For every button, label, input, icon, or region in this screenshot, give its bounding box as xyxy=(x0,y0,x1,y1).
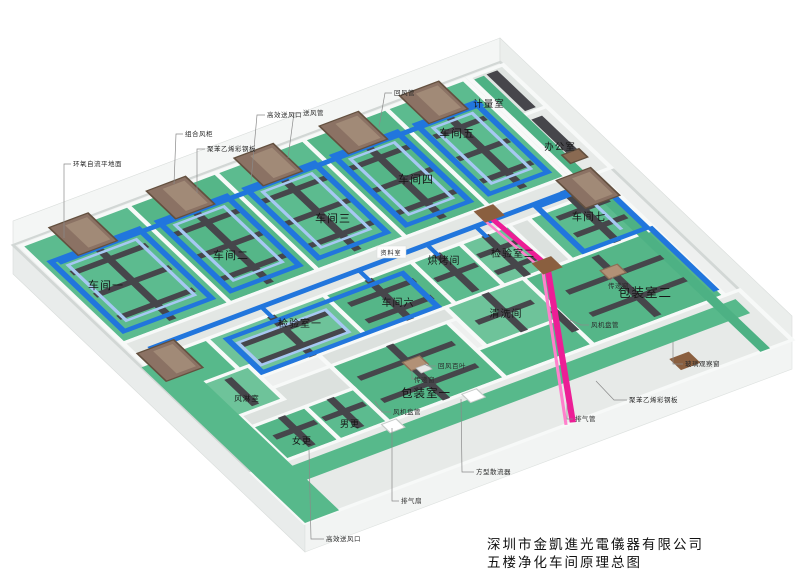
room-label-packing1: 包装室一 xyxy=(401,386,451,400)
callout-transfer-window-1: 传递窗 xyxy=(608,281,629,290)
room-label-metering: 计量室 xyxy=(473,98,505,110)
room-label-inspection1: 检验室一 xyxy=(278,317,322,330)
cleanroom-isometric-diagram: 车间一 车间二 车间三 车间四 车间五 车间七 计量室 办公室 检验室二 烘烤间… xyxy=(0,0,800,587)
title-block: 深圳市金凱進光電儀器有限公司 五楼净化车间原理总图 xyxy=(487,536,704,571)
room-label-workshop6: 车间六 xyxy=(382,296,415,309)
callout-return-duct: 回风管 xyxy=(394,88,415,97)
room-label-workshop7: 车间七 xyxy=(572,210,607,223)
callout-exhaust-duct: 排气管 xyxy=(575,414,596,423)
callout-glass-window: 玻璃观察窗 xyxy=(685,359,720,368)
callout-hepa-outlet-top: 高效送风口 xyxy=(267,110,302,119)
callout-exhaust-fan: 排气扇 xyxy=(401,496,422,505)
room-label-workshop3: 车间三 xyxy=(315,211,351,225)
room-label-workshop5: 车间五 xyxy=(439,126,475,140)
callout-panel-right: 聚苯乙烯彩钢板 xyxy=(629,395,678,404)
room-label-air-shower: 风淋室 xyxy=(234,393,260,403)
room-label-workshop2: 车间二 xyxy=(213,248,249,262)
room-label-female-changing: 女更 xyxy=(292,435,312,447)
callout-return-louver: 回风百叶 xyxy=(438,361,466,370)
callout-fan-coil-2: 风机盘管 xyxy=(393,407,421,416)
callout-square-diffuser: 方型散流器 xyxy=(476,467,511,476)
callout-panel-left: 聚苯乙烯彩钢板 xyxy=(207,144,256,153)
room-label-male-changing: 男更 xyxy=(340,419,360,430)
drawing-title: 五楼净化车间原理总图 xyxy=(487,554,642,571)
iso-floor-plane xyxy=(10,59,792,523)
callout-epoxy-floor: 环氧自流平地面 xyxy=(73,159,122,168)
room-label-workshop4: 车间四 xyxy=(398,172,434,186)
room-label-baking: 烘烤间 xyxy=(428,254,461,267)
callout-supply-duct: 送风管 xyxy=(303,108,324,117)
callout-fan-coil-1: 风机盘管 xyxy=(591,320,619,329)
room-label-office: 办公室 xyxy=(544,141,576,153)
callout-combined-ahu: 组合风柜 xyxy=(185,129,213,138)
room-label-inspection2: 检验室二 xyxy=(491,247,535,260)
callout-hepa-outlet-bottom: 高效送风口 xyxy=(326,534,361,543)
room-label-data-room: 资料室 xyxy=(380,249,401,257)
room-label-cleaning: 清洗间 xyxy=(490,307,523,320)
company-name: 深圳市金凱進光電儀器有限公司 xyxy=(487,536,704,553)
callout-transfer-window-2: 传递窗 xyxy=(414,375,435,384)
room-label-workshop1: 车间一 xyxy=(88,278,124,292)
